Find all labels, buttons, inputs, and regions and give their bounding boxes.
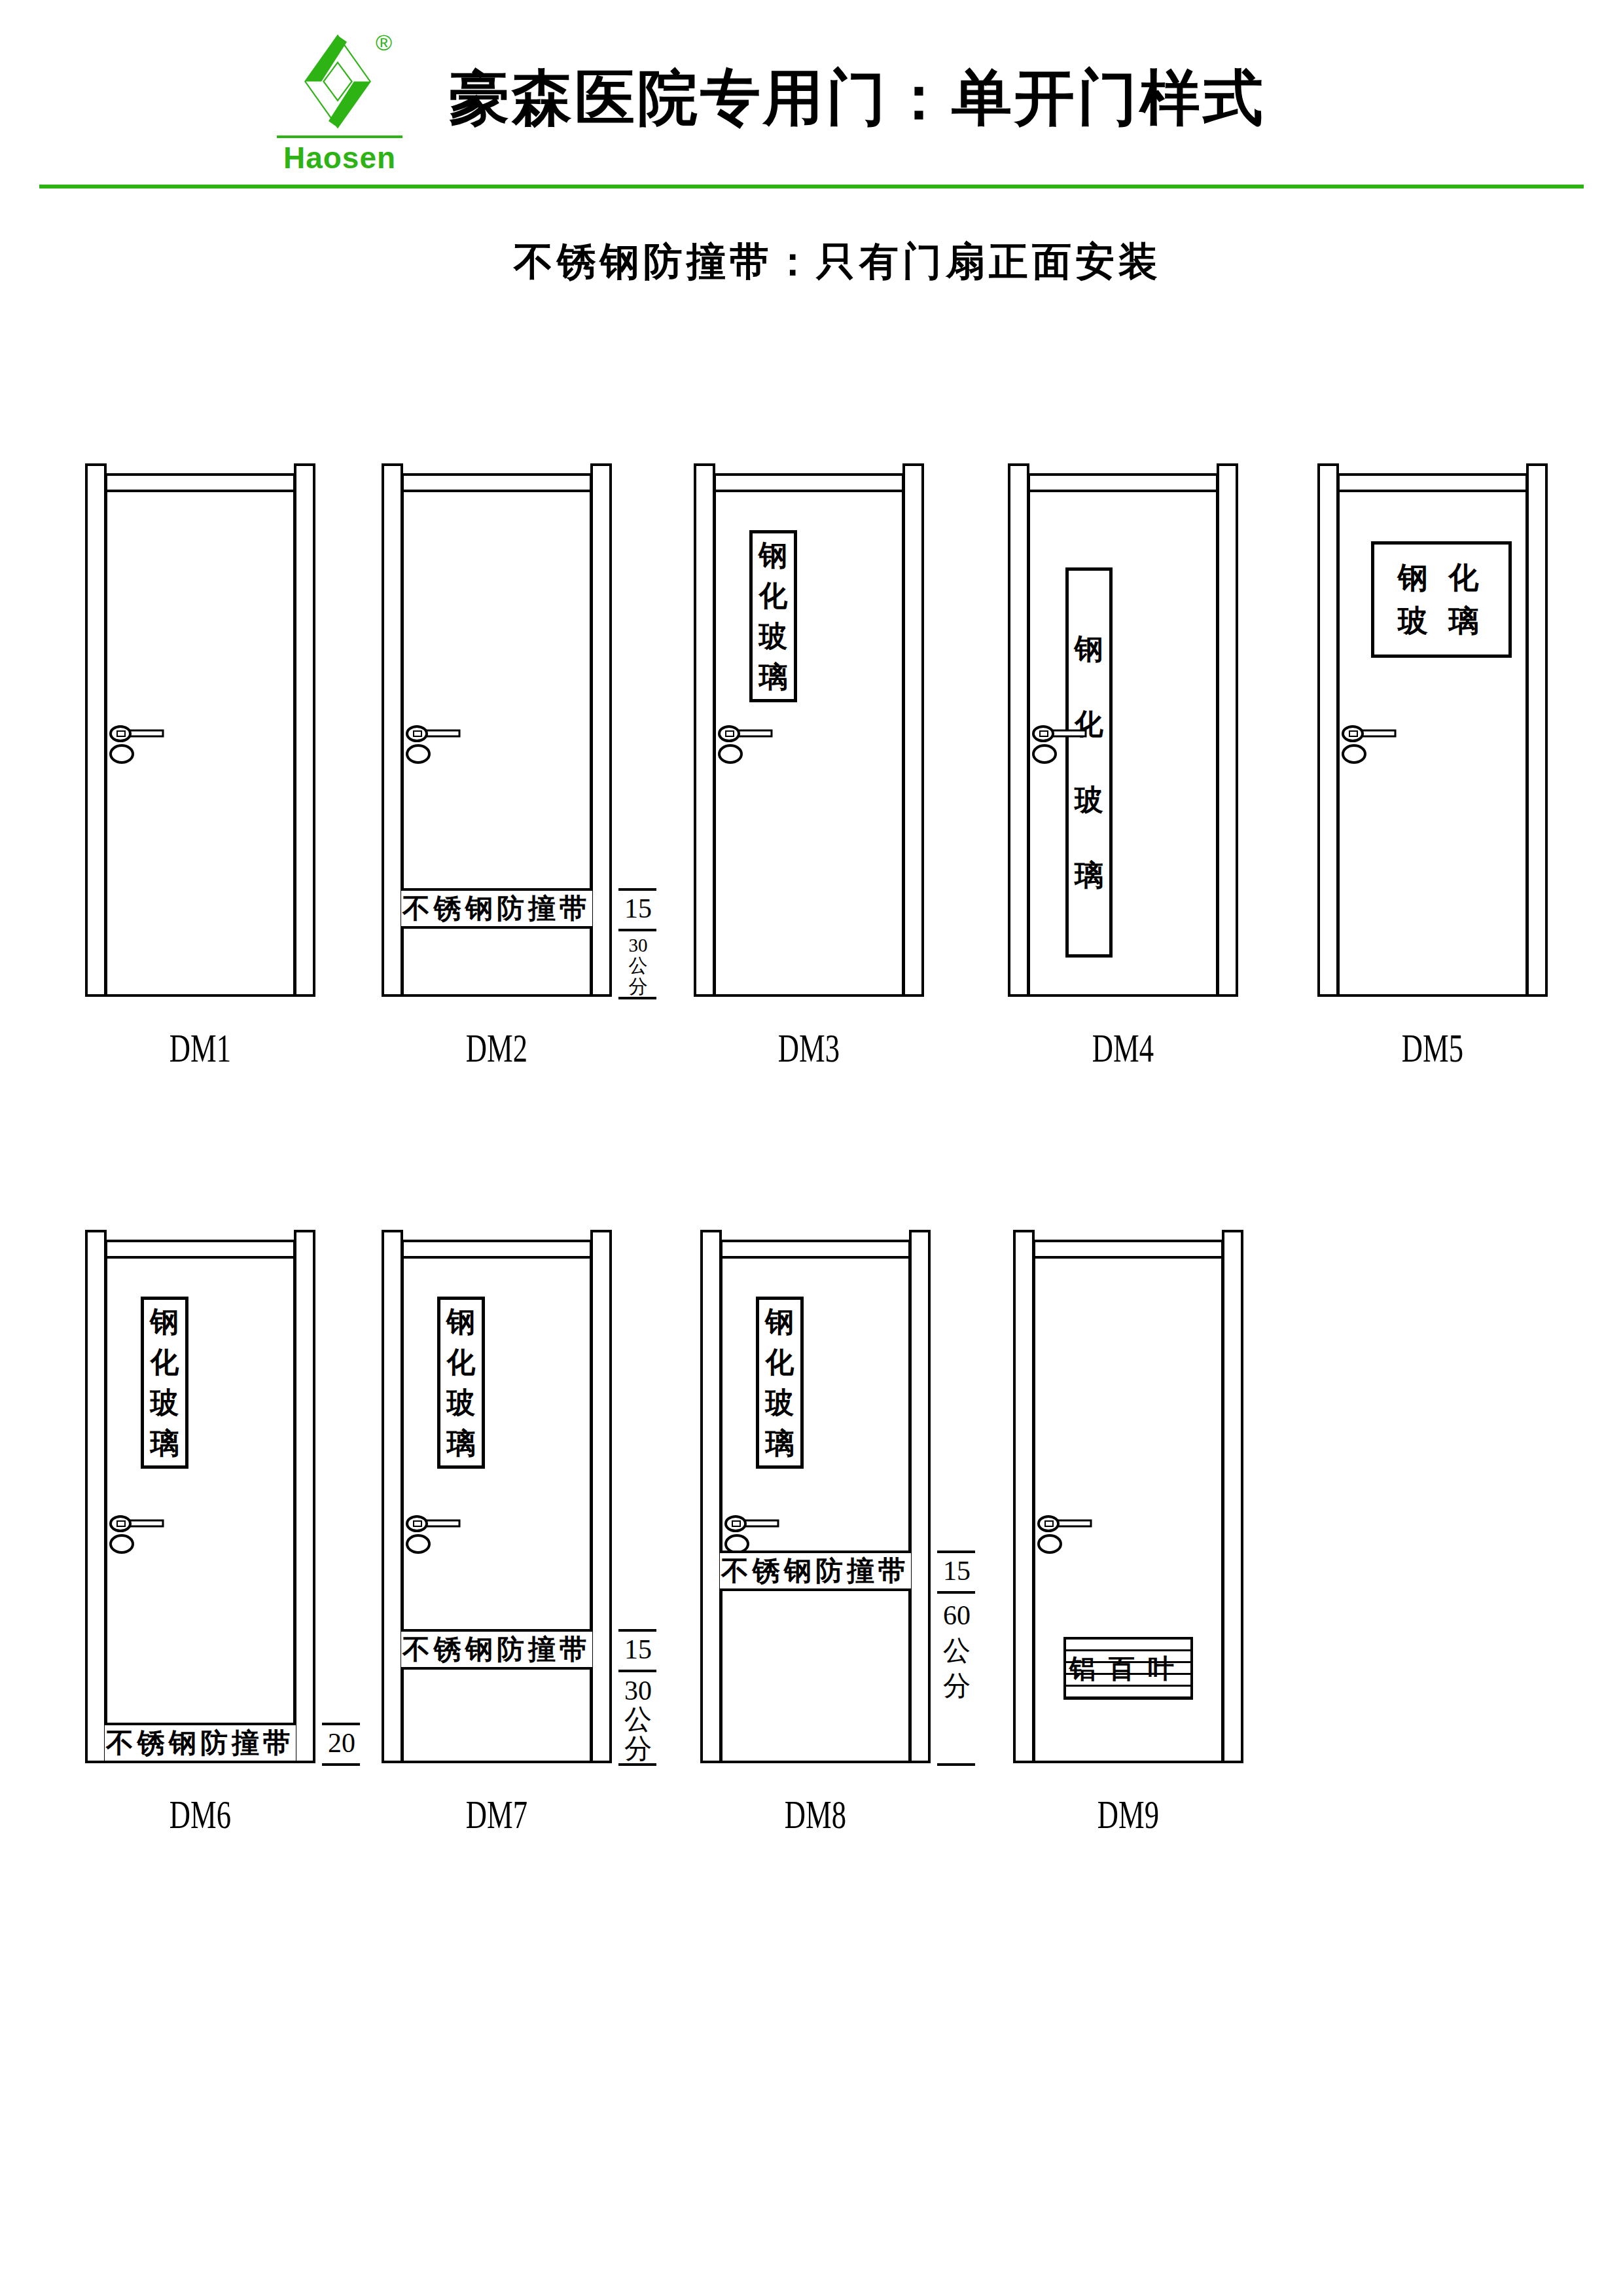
door-label: DM3 bbox=[707, 1025, 910, 1071]
door-label: DM9 bbox=[1026, 1791, 1230, 1838]
glass-label-char: 钢 bbox=[759, 535, 788, 576]
door-label: DM8 bbox=[713, 1791, 917, 1838]
dimension-value: 15 bbox=[937, 1551, 976, 1591]
door-label: DM2 bbox=[395, 1025, 598, 1071]
dimension-annotation: 1560公分 bbox=[937, 1230, 984, 1763]
door-diagram-DM5: 钢 化玻 璃DM5 bbox=[1317, 463, 1548, 997]
dimension-value: 60 bbox=[937, 1598, 976, 1633]
door-handle-icon bbox=[109, 1513, 168, 1554]
tempered-glass-panel: 钢化玻璃 bbox=[141, 1297, 188, 1469]
glass-label-char: 璃 bbox=[447, 1424, 476, 1464]
dimension-value: 公 bbox=[937, 1633, 976, 1668]
door-right-jamb bbox=[294, 463, 315, 997]
door-diagram-DM2: 不锈钢防撞带1530公分DM2 bbox=[382, 463, 612, 997]
glass-label-char: 璃 bbox=[759, 657, 788, 698]
dimension-value: 公 bbox=[618, 1705, 658, 1734]
glass-label: 玻 璃 bbox=[1398, 600, 1486, 643]
door-left-jamb bbox=[85, 1230, 107, 1763]
door-label: DM7 bbox=[395, 1791, 598, 1838]
door-label: DM4 bbox=[1021, 1025, 1224, 1071]
dimension-value: 15 bbox=[618, 1629, 658, 1670]
door-right-jamb bbox=[294, 1230, 315, 1763]
door-leaf bbox=[105, 1256, 296, 1763]
door-handle-icon bbox=[1342, 723, 1400, 764]
bump-strip: 不锈钢防撞带 bbox=[401, 1629, 592, 1670]
brand-logo-icon bbox=[302, 34, 373, 129]
header-divider bbox=[39, 185, 1584, 188]
glass-label-char: 璃 bbox=[766, 1424, 794, 1464]
dimension-tick bbox=[937, 1763, 975, 1766]
door-diagram-DM8: 钢化玻璃不锈钢防撞带1560公分DM8 bbox=[700, 1230, 931, 1763]
dimension-annotation: 1530公分 bbox=[618, 1230, 666, 1763]
dimension-tick bbox=[322, 1763, 360, 1766]
glass-label-char: 化 bbox=[759, 576, 788, 617]
door-label: DM1 bbox=[98, 1025, 302, 1071]
bump-strip-label: 不锈钢防撞带 bbox=[721, 1552, 910, 1589]
glass-label-char: 钢 bbox=[151, 1302, 179, 1342]
door-diagram-DM1: DM1 bbox=[85, 463, 315, 997]
door-leaf bbox=[720, 1256, 911, 1763]
page-subtitle: 不锈钢防撞带：只有门扇正面安装 bbox=[452, 236, 1224, 289]
door-left-jamb bbox=[85, 463, 107, 997]
glass-label-char: 化 bbox=[447, 1342, 476, 1383]
dimension-value: 15 bbox=[618, 888, 658, 929]
glass-label-char: 化 bbox=[766, 1342, 794, 1383]
door-left-jamb bbox=[382, 1230, 403, 1763]
door-label: DM6 bbox=[98, 1791, 302, 1838]
door-left-jamb bbox=[1317, 463, 1339, 997]
door-left-jamb bbox=[694, 463, 715, 997]
brand-name: Haosen bbox=[262, 140, 418, 175]
door-right-jamb bbox=[902, 463, 924, 997]
door-right-jamb bbox=[590, 463, 612, 997]
glass-label-char: 钢 bbox=[1075, 634, 1103, 665]
dimension-value: 30 bbox=[618, 935, 658, 956]
louver-panel: 铝百叶 bbox=[1063, 1637, 1193, 1700]
door-left-jamb bbox=[1013, 1230, 1035, 1763]
dimension-tick bbox=[618, 1670, 656, 1672]
glass-label-char: 玻 bbox=[766, 1383, 794, 1424]
tempered-glass-panel: 钢化玻璃 bbox=[749, 530, 797, 702]
door-left-jamb bbox=[700, 1230, 722, 1763]
dimension-value: 20 bbox=[322, 1723, 361, 1763]
tempered-glass-panel: 钢 化玻 璃 bbox=[1371, 541, 1512, 658]
door-diagram-DM7: 钢化玻璃不锈钢防撞带1530公分DM7 bbox=[382, 1230, 612, 1763]
bump-strip-label: 不锈钢防撞带 bbox=[402, 890, 591, 927]
dimension-value: 30 bbox=[618, 1676, 658, 1705]
door-label: DM5 bbox=[1330, 1025, 1534, 1071]
glass-label-char: 玻 bbox=[759, 617, 788, 657]
glass-label-char: 钢 bbox=[447, 1302, 476, 1342]
door-left-jamb bbox=[1008, 463, 1029, 997]
glass-label: 钢 化 bbox=[1398, 556, 1486, 600]
dimension-tick bbox=[618, 929, 656, 931]
glass-label-char: 璃 bbox=[1075, 860, 1103, 891]
door-right-jamb bbox=[1526, 463, 1548, 997]
tempered-glass-panel: 钢化玻璃 bbox=[437, 1297, 485, 1469]
dimension-value: 分 bbox=[937, 1668, 976, 1704]
door-handle-icon bbox=[718, 723, 777, 764]
dimension-value: 分 bbox=[618, 977, 658, 997]
door-handle-icon bbox=[406, 723, 465, 764]
glass-label-char: 玻 bbox=[447, 1383, 476, 1424]
door-diagram-DM3: 钢化玻璃DM3 bbox=[694, 463, 924, 997]
door-diagram-DM4: 钢化玻璃DM4 bbox=[1008, 463, 1238, 997]
door-handle-icon bbox=[1032, 723, 1091, 764]
glass-label-char: 璃 bbox=[151, 1424, 179, 1464]
door-diagram-DM6: 钢化玻璃不锈钢防撞带20DM6 bbox=[85, 1230, 315, 1763]
dimension-annotation: 20 bbox=[322, 1230, 369, 1763]
bump-strip-label: 不锈钢防撞带 bbox=[402, 1631, 591, 1668]
door-handle-icon bbox=[1037, 1513, 1096, 1554]
glass-label-char: 化 bbox=[151, 1342, 179, 1383]
door-left-jamb bbox=[382, 463, 403, 997]
door-right-jamb bbox=[1222, 1230, 1243, 1763]
door-handle-icon bbox=[109, 723, 168, 764]
bump-strip: 不锈钢防撞带 bbox=[720, 1551, 911, 1591]
dimension-value: 分 bbox=[618, 1734, 658, 1763]
dimension-tick bbox=[937, 1591, 975, 1594]
page-root: ® Haosen 豪森医院专用门：单开门样式 不锈钢防撞带：只有门扇正面安装 D… bbox=[0, 0, 1623, 2296]
page-title: 豪森医院专用门：单开门样式 bbox=[419, 58, 1296, 139]
bump-strip-label: 不锈钢防撞带 bbox=[106, 1725, 294, 1761]
door-handle-icon bbox=[724, 1513, 783, 1554]
door-right-jamb bbox=[1217, 463, 1238, 997]
bump-strip: 不锈钢防撞带 bbox=[105, 1723, 296, 1763]
door-handle-icon bbox=[406, 1513, 465, 1554]
tempered-glass-panel: 钢化玻璃 bbox=[756, 1297, 804, 1469]
glass-label-char: 玻 bbox=[1075, 785, 1103, 816]
logo-underline bbox=[277, 135, 402, 138]
bump-strip: 不锈钢防撞带 bbox=[401, 888, 592, 929]
dimension-annotation: 1530公分 bbox=[618, 463, 666, 997]
registered-trademark-icon: ® bbox=[376, 30, 392, 56]
dimension-value: 公 bbox=[618, 956, 658, 976]
louver-label: 铝百叶 bbox=[1069, 1651, 1187, 1687]
door-leaf bbox=[401, 1256, 592, 1763]
door-right-jamb bbox=[590, 1230, 612, 1763]
door-diagram-DM9: 铝百叶DM9 bbox=[1013, 1230, 1243, 1763]
door-right-jamb bbox=[909, 1230, 931, 1763]
glass-label-char: 玻 bbox=[151, 1383, 179, 1424]
dimension-tick bbox=[618, 997, 656, 999]
glass-label-char: 钢 bbox=[766, 1302, 794, 1342]
